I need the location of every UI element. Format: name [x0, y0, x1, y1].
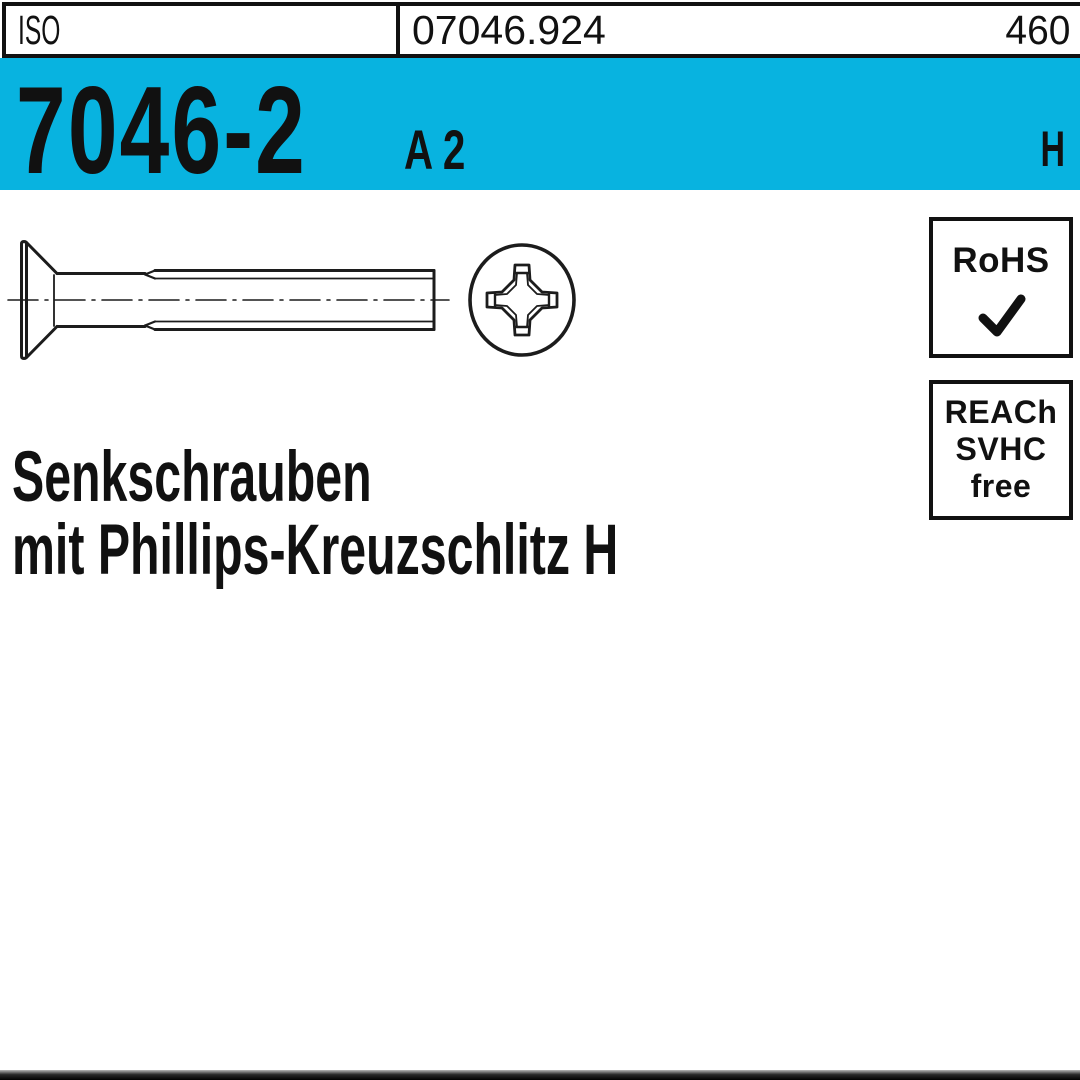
article-number: 07046.924: [412, 10, 606, 51]
product-title-line-1: Senkschrauben: [12, 441, 618, 514]
standard-number: 7046-2: [16, 65, 420, 197]
material-grade: A 2: [404, 122, 489, 178]
standard-banner: 7046-2 A 2 H: [0, 58, 1080, 190]
standard-org-label: ISO: [18, 10, 60, 51]
phillips-recess-front-view-icon: [470, 245, 574, 355]
standard-org-box: ISO: [2, 2, 408, 58]
countersunk-screw-side-view-icon: [8, 242, 449, 359]
product-title: Senkschrauben mit Phillips-Kreuzschlitz …: [12, 441, 904, 587]
reach-line-1: REACh: [933, 394, 1069, 431]
screw-technical-drawing: [0, 215, 600, 385]
right-number: 460: [1005, 10, 1070, 51]
bottom-bar: [0, 1070, 1080, 1080]
rohs-label: RoHS: [933, 243, 1069, 278]
check-icon: [973, 292, 1029, 338]
reach-line-2: SVHC: [933, 431, 1069, 468]
product-label-image: ISO 07046.924 460 7046-2 A 2 H: [0, 0, 1080, 1080]
drive-letter: H: [1029, 124, 1065, 174]
rohs-badge: RoHS: [929, 217, 1073, 358]
reach-line-3: free: [933, 468, 1069, 505]
article-number-box: 07046.924 460: [396, 2, 1080, 58]
reach-badge: REACh SVHC free: [929, 380, 1073, 520]
product-title-line-2: mit Phillips-Kreuzschlitz H: [12, 514, 618, 587]
